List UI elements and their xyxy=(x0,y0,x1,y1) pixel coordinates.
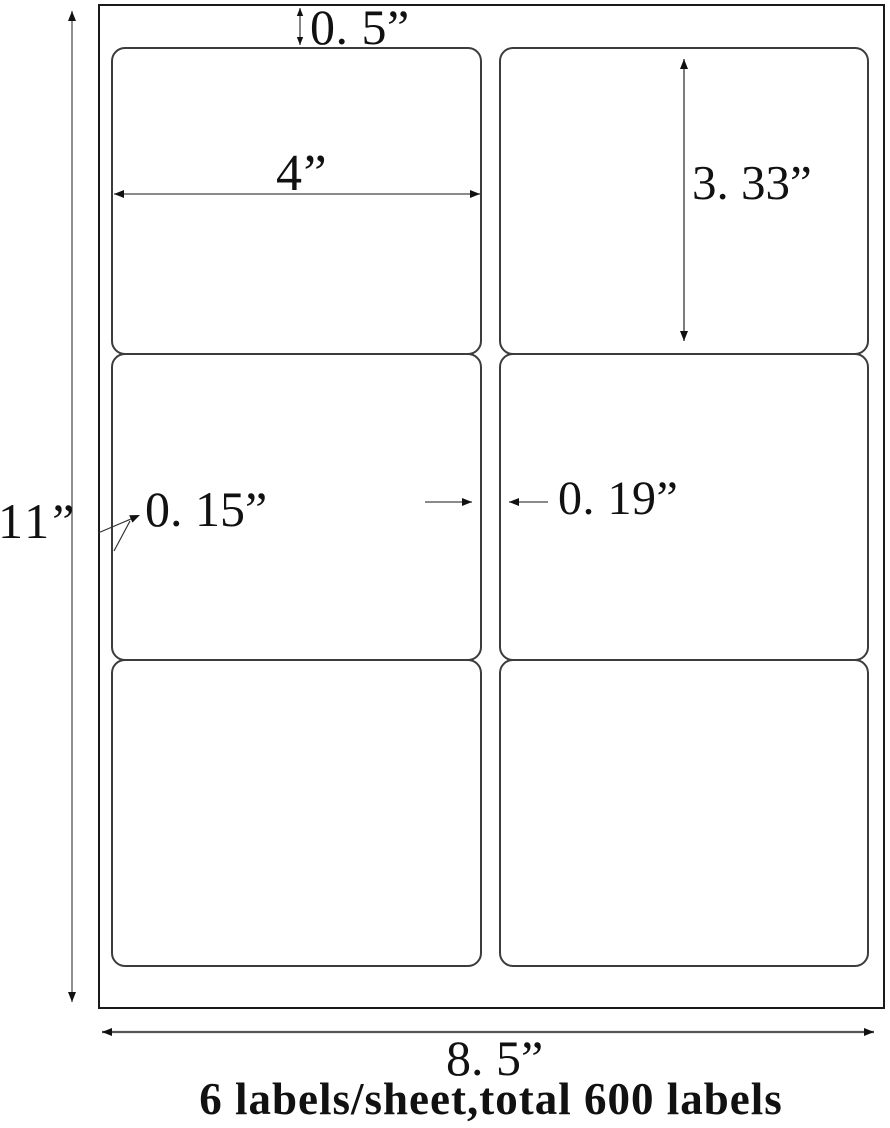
svg-text:3. 33”: 3. 33” xyxy=(692,155,812,210)
svg-text:0. 5”: 0. 5” xyxy=(310,0,410,55)
svg-text:6 labels/sheet,total 600 label: 6 labels/sheet,total 600 labels xyxy=(199,1074,782,1124)
svg-text:0. 15”: 0. 15” xyxy=(145,481,267,537)
svg-text:11”: 11” xyxy=(0,493,77,549)
svg-text:4”: 4” xyxy=(276,145,328,202)
svg-text:0. 19”: 0. 19” xyxy=(558,472,678,525)
